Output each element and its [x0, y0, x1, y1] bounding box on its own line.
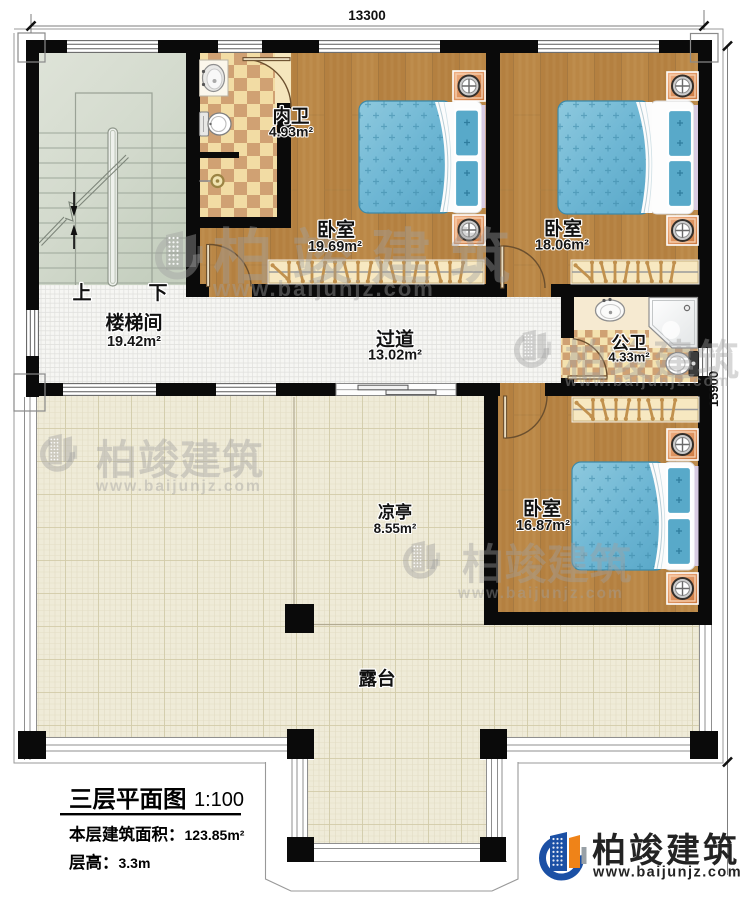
svg-text:www.baijunjz.com: www.baijunjz.com: [212, 276, 435, 301]
svg-text:13.02m²: 13.02m²: [368, 348, 422, 364]
svg-text:www.baijunjz.com: www.baijunjz.com: [592, 865, 742, 881]
svg-text:凉亭: 凉亭: [378, 502, 412, 522]
svg-text:卧室: 卧室: [317, 218, 355, 241]
svg-text:16.87m²: 16.87m²: [516, 518, 570, 534]
svg-text:18.06m²: 18.06m²: [535, 238, 589, 254]
svg-text:三层平面图: 三层平面图: [69, 786, 187, 812]
svg-text:本层建筑面积：123.85m²: 本层建筑面积：123.85m²: [69, 824, 245, 844]
svg-text:8.55m²: 8.55m²: [374, 521, 417, 536]
svg-text:柏竣建筑: 柏竣建筑: [96, 437, 264, 483]
svg-text:柏竣建筑: 柏竣建筑: [462, 541, 632, 588]
svg-text:卧室: 卧室: [523, 497, 561, 520]
svg-text:4.93m²: 4.93m²: [269, 124, 314, 140]
svg-text:13300: 13300: [348, 8, 386, 23]
svg-text:www.baijunjz.com: www.baijunjz.com: [95, 478, 262, 495]
svg-text:1:100: 1:100: [194, 789, 244, 811]
svg-text:www.baijunjz.com: www.baijunjz.com: [457, 585, 624, 602]
svg-text:4.33m²: 4.33m²: [608, 350, 650, 365]
svg-text:露台: 露台: [358, 668, 395, 689]
svg-text:下: 下: [148, 283, 167, 304]
svg-text:楼梯间: 楼梯间: [105, 311, 162, 334]
svg-text:19.69m²: 19.69m²: [308, 239, 362, 255]
svg-text:19.42m²: 19.42m²: [107, 334, 161, 350]
svg-text:层高：3.3m: 层高：3.3m: [69, 852, 150, 872]
svg-text:www.baijunjz.com: www.baijunjz.com: [564, 373, 731, 390]
svg-text:上: 上: [72, 282, 91, 304]
